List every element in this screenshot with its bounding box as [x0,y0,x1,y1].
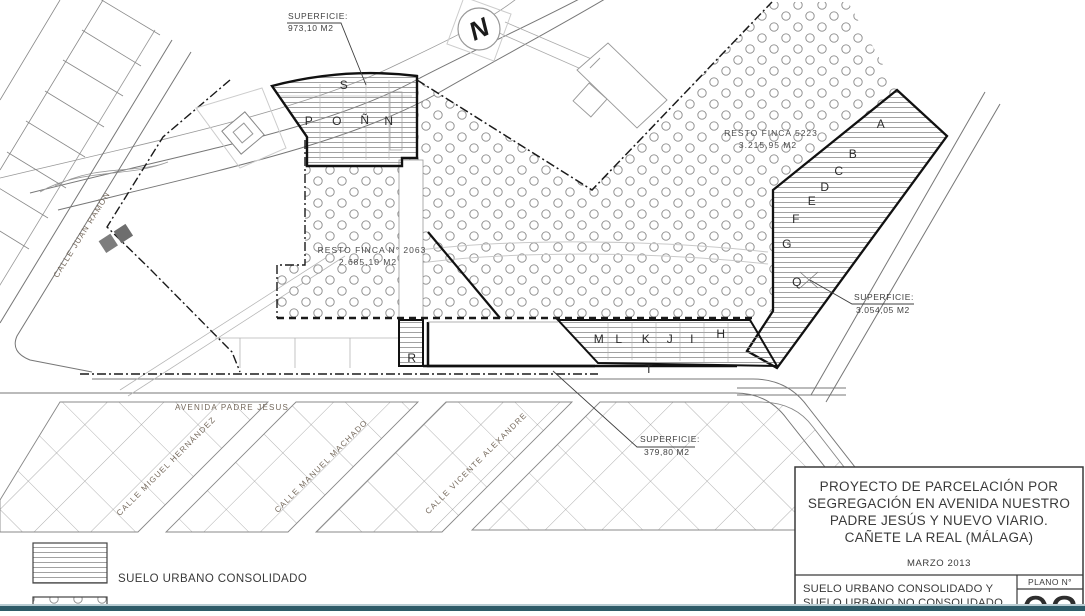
parcel-j: J [667,332,674,346]
building-outlines-north [573,43,667,128]
crosswalk [99,224,133,253]
legend: SUELO URBANO CONSOLIDADO [33,543,307,611]
parcel-f: F [792,212,800,226]
bottom-accent-bar [0,606,1085,611]
parcel-m: M [594,332,605,346]
parcel-c: C [834,164,843,178]
parcel-o: O [332,114,342,128]
parcel-l: L [615,332,622,346]
resto-finca-2-value: 3.215,95 M2 [739,140,797,150]
left-parcel-ticks [0,0,160,249]
parcel-p: P [305,114,314,128]
title-line-4: CAÑETE LA REAL (MÁLAGA) [845,530,1034,545]
superficie-right-title: SUPERFICIE: [854,292,914,302]
title-block: PROYECTO DE PARCELACIÓN POR SEGREGACIÓN … [795,467,1083,611]
parcel-d: D [820,180,829,194]
parcel-k: K [642,332,651,346]
parcel-t: T [645,362,653,376]
superficie-top-value: 973,10 M2 [288,23,334,33]
parcel-r: R [407,351,416,365]
street-label-juan-ramon: CALLE JUAN RAMÓN [52,190,112,279]
superficie-bottom-title: SUPERFICIE: [640,434,700,444]
legend-label-consolidado: SUELO URBANO CONSOLIDADO [118,573,307,585]
parcel-q: Q [792,275,802,289]
resto-finca-1-title: RESTO FINCA N° 2063 [318,245,427,255]
superficie-bottom-value: 379,80 M2 [644,447,690,457]
legend-swatch-consolidado [33,543,107,583]
title-line-3: PADRE JESÚS Y NUEVO VIARIO. [830,513,1048,528]
street-label-avenida: AVENIDA PADRE JESUS [175,403,289,412]
parcel-e: E [808,194,817,208]
title-subtitle-1: SUELO URBANO CONSOLIDADO Y [803,583,994,595]
title-line-1: PROYECTO DE PARCELACIÓN POR [820,479,1059,494]
viario-strip [399,160,423,320]
parcel-h: H [716,327,725,341]
parcel-s: S [340,78,349,92]
title-date: MARZO 2013 [907,558,971,569]
parcel-b: B [849,147,858,161]
superficie-top-title: SUPERFICIE: [288,11,348,21]
parcel-g: G [782,237,792,251]
parcel-i: I [690,332,694,346]
parcel-enye: Ñ [360,113,369,127]
south-blocks [0,402,893,532]
resto-finca-2-title: RESTO FINCA 5223 [724,128,818,138]
superficie-right-value: 3.054,05 M2 [856,305,910,315]
bottom-accent-line [0,604,1085,606]
title-line-2: SEGREGACIÓN EN AVENIDA NUESTRO [808,496,1070,511]
resto-finca-1-value: 2.685,10 M2 [339,257,397,267]
site-plan-svg: N SUPERFICIE: 973,10 M2 SUPERFICIE: 3.05… [0,0,1085,611]
parcel-n: N [384,114,393,128]
parcel-a: A [877,117,886,131]
